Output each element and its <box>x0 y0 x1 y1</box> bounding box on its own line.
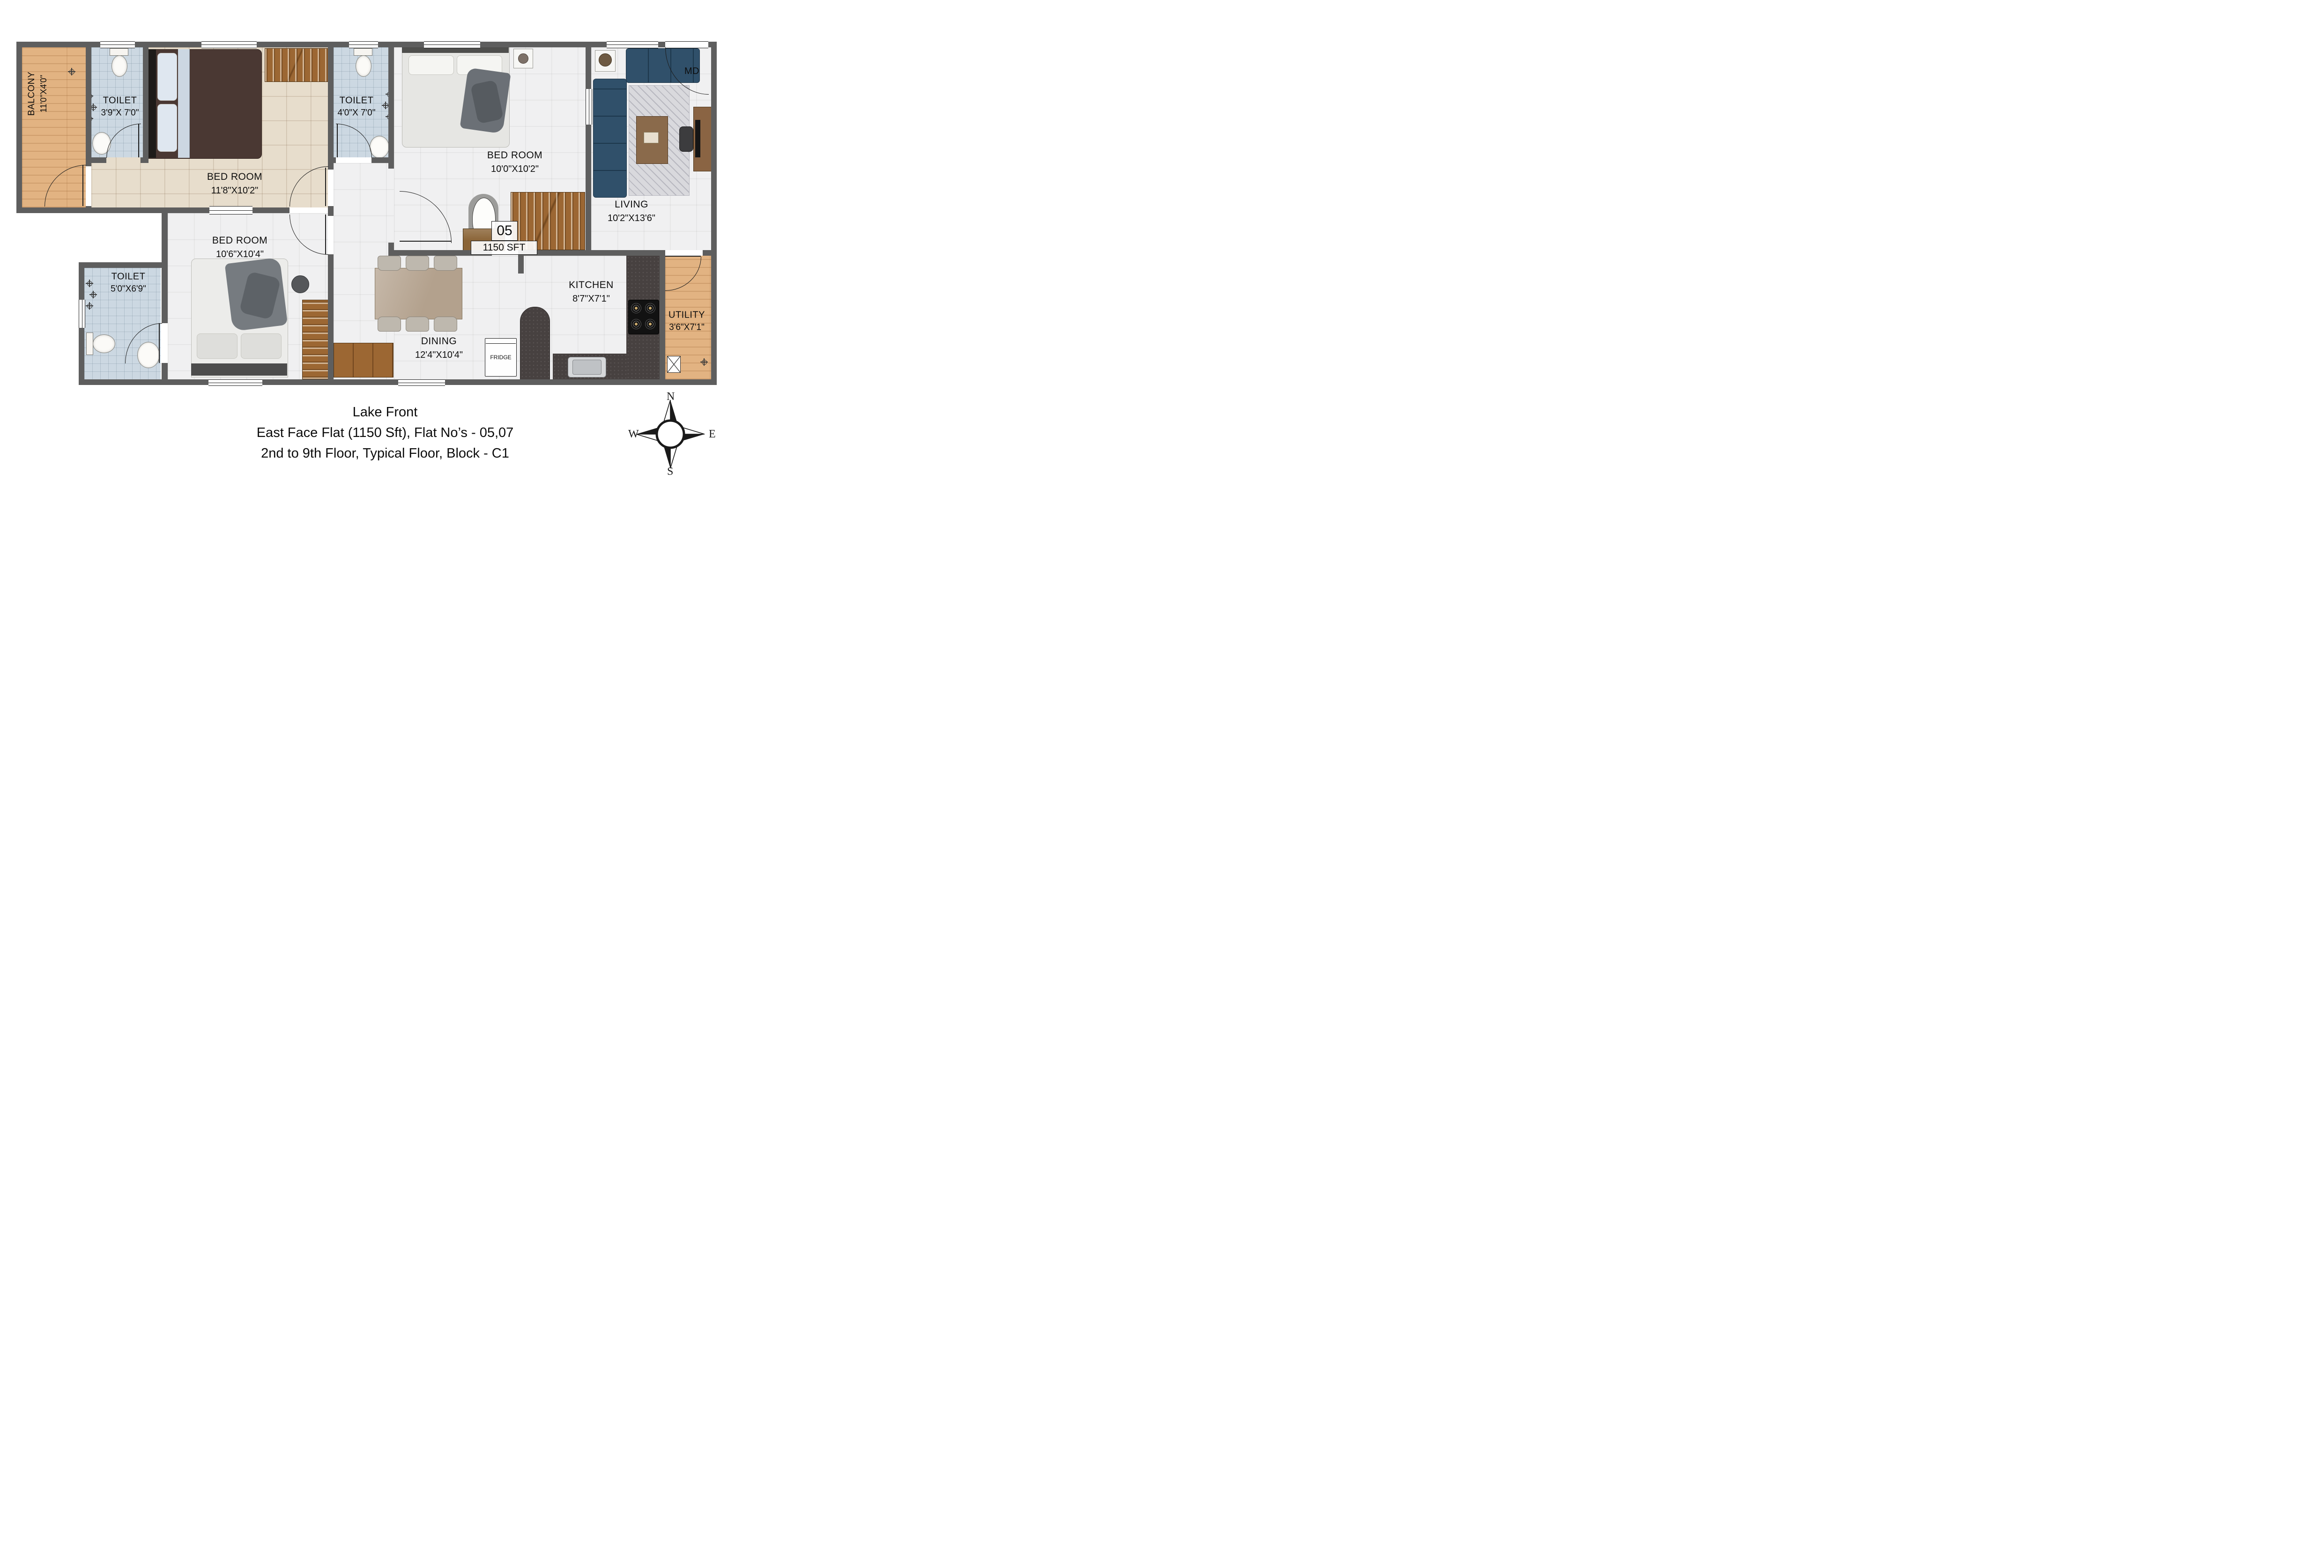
wall <box>162 213 168 323</box>
wall <box>328 206 334 213</box>
fridge-label: FRIDGE <box>490 354 511 361</box>
kitchen-counter-arch <box>520 307 550 380</box>
room-dims: 3'9"X 7'0" <box>101 107 139 119</box>
sofa-left-icon <box>593 79 627 198</box>
faucet-icon <box>69 69 74 74</box>
wall <box>162 363 168 379</box>
bedroom2-label: BED ROOM 10'0"X10'2" <box>487 148 542 176</box>
bedroom3-window-icon <box>208 379 262 386</box>
room-dims: 10'0"X10'2" <box>487 163 542 176</box>
toilet2-window-icon <box>349 41 378 48</box>
wall <box>711 42 717 385</box>
fridge-top-line <box>486 343 516 344</box>
room-dims: 11'0"X4'0" <box>38 72 49 116</box>
dining-chair <box>406 256 429 271</box>
dining-chair <box>378 317 401 332</box>
main-door-label: MD <box>684 64 699 78</box>
bed1-pillow <box>157 53 177 101</box>
wall <box>328 157 336 163</box>
coffee-table-book <box>644 132 659 143</box>
room-dims: 4'0"X 7'0" <box>338 107 376 119</box>
toilet3-door-leaf <box>159 323 160 363</box>
balcony-label: BALCONY 11'0"X4'0" <box>26 72 49 116</box>
room-dims: 12'4"X10'4" <box>415 348 463 362</box>
dining-label: DINING 12'4"X10'4" <box>415 334 463 362</box>
stove-burner <box>645 303 656 314</box>
balcony-door-leaf <box>82 165 83 206</box>
room-name: BED ROOM <box>487 148 542 163</box>
sideboard-icon <box>334 343 394 377</box>
compass-south: S <box>667 466 673 478</box>
faucet-icon <box>383 103 388 108</box>
utility-drain <box>667 356 681 373</box>
wall <box>86 42 91 166</box>
toilet2-door-leaf <box>337 124 338 157</box>
wall <box>141 157 148 163</box>
wall <box>518 256 524 274</box>
caption-line3: 2nd to 9th Floor, Typical Floor, Block -… <box>257 443 514 464</box>
toilet3-wc-bowl <box>93 334 115 353</box>
room-name: TOILET <box>101 95 139 107</box>
bedroom2-window-icon <box>424 41 480 48</box>
desk-chair-icon <box>679 126 693 152</box>
toilet2-label: TOILET 4'0"X 7'0" <box>338 95 376 119</box>
wall <box>86 206 91 213</box>
wall <box>328 42 334 170</box>
toilet1-door-leaf <box>138 124 139 157</box>
bed1-sheet-fold <box>178 49 190 158</box>
bed2-lamp <box>518 53 528 64</box>
room-name: KITCHEN <box>569 278 614 292</box>
toilet1-wc-icon <box>110 48 128 56</box>
wall <box>79 262 168 268</box>
wall <box>16 42 22 213</box>
toilet3-wc-icon <box>86 333 93 355</box>
wall <box>703 250 717 256</box>
tv-icon <box>695 120 700 157</box>
compass-north: N <box>667 391 675 403</box>
room-dims: 11'8"X10'2" <box>207 184 262 197</box>
caption: Lake Front East Face Flat (1150 Sft), Fl… <box>257 402 514 464</box>
bedroom1-wardrobe-icon <box>265 48 329 82</box>
bed1-pillow <box>157 104 177 152</box>
bed3-side-table <box>291 275 309 293</box>
bedroom2-niche-window <box>586 89 592 125</box>
room-name: TOILET <box>111 271 146 283</box>
room-dims: 10'6"X10'4" <box>212 248 267 261</box>
dining-table-icon <box>375 268 462 319</box>
bed3-pillow <box>197 333 238 359</box>
bedroom1-window-icon <box>201 41 257 48</box>
bed3-pillow <box>241 333 282 359</box>
room-name: DINING <box>415 334 463 348</box>
stove-burner <box>645 318 656 330</box>
bedroom1-door-leaf <box>325 168 326 206</box>
utility-label: UTILITY 3'6"X7'1" <box>668 309 705 334</box>
room-name: TOILET <box>338 95 376 107</box>
plant-icon <box>599 53 612 67</box>
bedroom1-niche-window <box>209 206 252 214</box>
md-text: MD <box>684 64 699 78</box>
bed1-headboard <box>148 49 156 158</box>
faucet-icon <box>91 292 96 297</box>
bedroom3-door-leaf <box>325 214 326 254</box>
living-window-icon <box>607 41 658 48</box>
flat-area: 1150 SFT <box>483 242 526 253</box>
room-name: UTILITY <box>668 309 705 322</box>
bedroom1-label: BED ROOM 11'8"X10'2" <box>207 170 262 197</box>
wall <box>86 157 106 163</box>
wall <box>586 42 591 250</box>
toilet3-label: TOILET 5'0"X6'9" <box>111 271 146 296</box>
sink-basin <box>572 360 601 375</box>
stove-burner <box>631 318 642 330</box>
room-name: BALCONY <box>26 72 38 116</box>
room-name: BED ROOM <box>207 170 262 184</box>
room-dims: 10'2"X13'6" <box>608 212 655 225</box>
room-name: BED ROOM <box>212 234 267 248</box>
compass-star-icon <box>635 399 705 469</box>
flat-area-badge: 1150 SFT <box>471 241 537 255</box>
toilet1-label: TOILET 3'9"X 7'0" <box>101 95 139 119</box>
toilet2-basin-icon <box>370 136 389 158</box>
floor-plan: FRIDGE <box>0 0 735 496</box>
dining-chair <box>378 256 401 271</box>
toilet3-window-icon <box>79 300 85 328</box>
dining-window-icon <box>398 379 445 386</box>
wall <box>388 243 394 256</box>
room-dims: 8'7"X7'1" <box>569 292 614 305</box>
room-dims: 3'6"X7'1" <box>668 322 705 334</box>
wall <box>79 379 717 385</box>
caption-line2: East Face Flat (1150 Sft), Flat No’s - 0… <box>257 422 514 443</box>
compass-rose-icon: N E S W <box>628 396 713 478</box>
wall <box>660 256 665 379</box>
wall <box>328 213 334 216</box>
compass-east: E <box>709 428 716 441</box>
toilet1-wc-bowl <box>111 55 127 77</box>
faucet-icon <box>87 303 92 309</box>
bed2-pillow <box>408 55 454 75</box>
bedroom3-label: BED ROOM 10'6"X10'4" <box>212 234 267 261</box>
room-name: LIVING <box>608 198 655 212</box>
stove-burner <box>631 303 642 314</box>
dining-chair <box>434 317 457 332</box>
caption-line1: Lake Front <box>257 402 514 422</box>
flat-number-badge: 05 <box>491 221 518 241</box>
room-dims: 5'0"X6'9" <box>111 283 146 296</box>
wall <box>388 42 394 169</box>
faucet-icon <box>87 281 92 286</box>
wall <box>143 42 148 163</box>
compass-west: W <box>628 428 639 441</box>
bed3-headboard <box>191 363 287 376</box>
bedroom3-wardrobe-icon <box>302 300 329 379</box>
wall <box>518 250 665 256</box>
toilet1-window-icon <box>100 41 135 48</box>
flat-number: 05 <box>497 223 512 239</box>
wall <box>328 254 334 379</box>
utility-door-leaf <box>665 256 701 257</box>
bedroom2-door-leaf <box>400 241 451 242</box>
dining-chair <box>406 317 429 332</box>
toilet2-wc-icon <box>354 48 372 56</box>
toilet2-wc-bowl <box>356 55 371 77</box>
living-label: LIVING 10'2"X13'6" <box>608 198 655 225</box>
kitchen-label: KITCHEN 8'7"X7'1" <box>569 278 614 305</box>
dining-chair <box>434 256 457 271</box>
faucet-icon <box>91 105 96 110</box>
faucet-icon <box>702 360 707 365</box>
